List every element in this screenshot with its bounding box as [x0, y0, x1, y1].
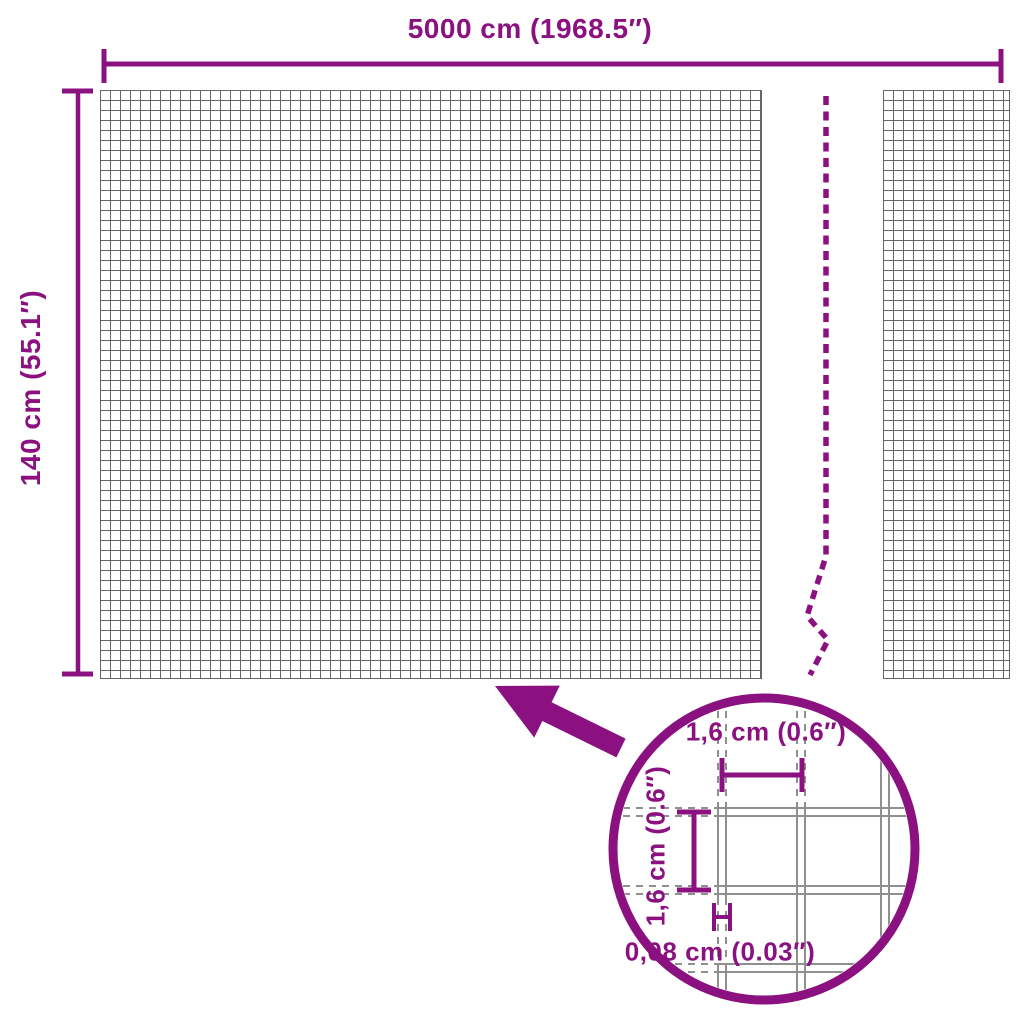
- width-dimension-line: [104, 49, 1001, 83]
- zoom-arrow-icon: [495, 686, 626, 758]
- detail-mesh-height-label: 1,6 cm (0.6″): [641, 766, 672, 927]
- detail-wire-thickness-label: 0,08 cm (0.03″): [625, 937, 816, 968]
- roll-break-line: [807, 96, 828, 675]
- detail-mesh-width-label: 1,6 cm (0.6″): [686, 717, 847, 748]
- height-dimension-line: [62, 91, 93, 674]
- overall-height-label: 140 cm (55.1″): [15, 290, 47, 486]
- overall-width-label: 5000 cm (1968.5″): [408, 13, 653, 45]
- product-dimension-diagram: 5000 cm (1968.5″) 140 cm (55.1″) 1,6 cm …: [0, 0, 1024, 1024]
- diagram-graphics: [0, 0, 1024, 1024]
